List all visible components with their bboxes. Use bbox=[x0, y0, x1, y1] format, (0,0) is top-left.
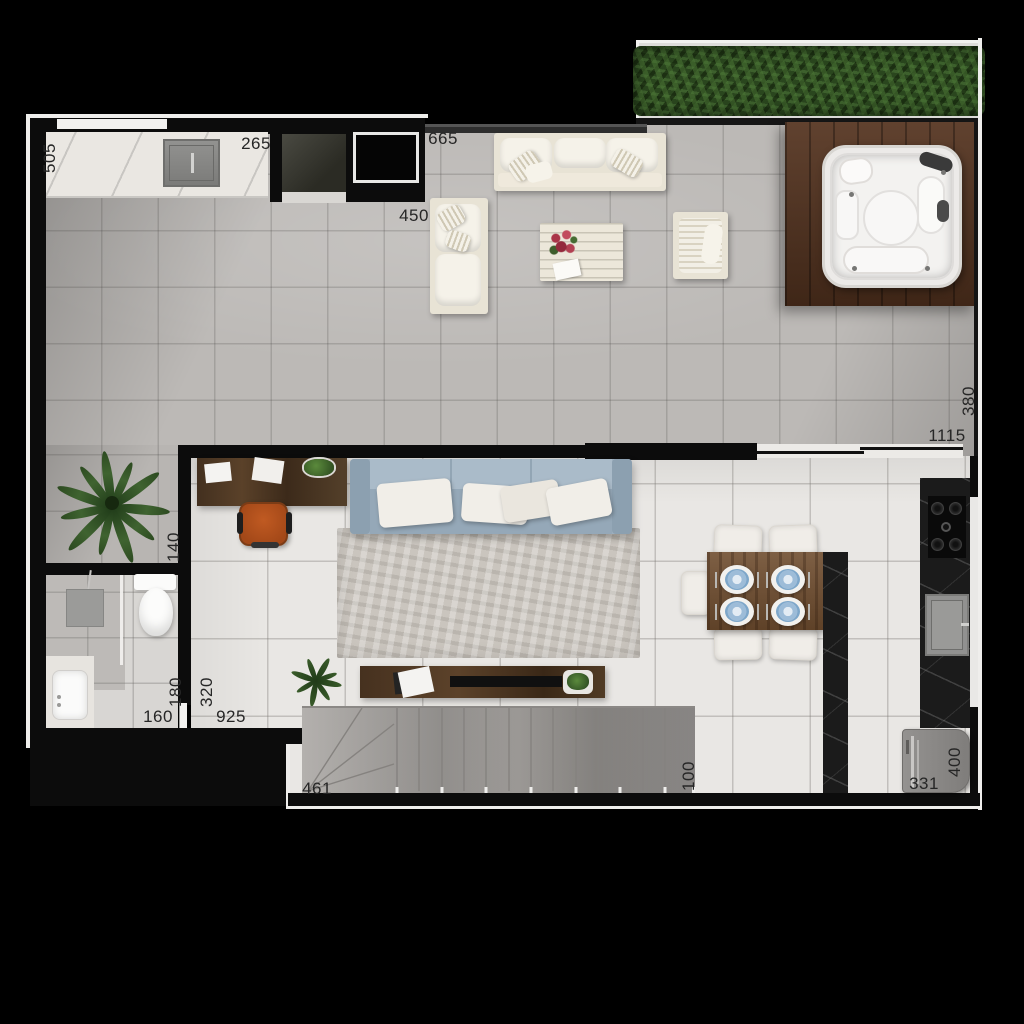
dimension-label: 461 bbox=[302, 779, 332, 799]
knife-icon bbox=[757, 604, 759, 620]
blue-plate bbox=[776, 601, 800, 622]
built-in-appliance bbox=[353, 132, 419, 183]
blue-plate bbox=[725, 601, 749, 622]
palm-plant bbox=[45, 443, 179, 571]
desk-plant bbox=[304, 459, 334, 476]
hot-tub bbox=[822, 145, 962, 288]
place-setting bbox=[766, 596, 810, 628]
glass-door-panel bbox=[860, 447, 963, 450]
wall-left bbox=[30, 118, 46, 742]
hot-tub-jet bbox=[852, 266, 857, 271]
dimension-label: 100 bbox=[679, 761, 699, 791]
outdoor-coffee-table bbox=[540, 223, 623, 281]
paper-sheet bbox=[398, 666, 435, 698]
shower-drain bbox=[66, 589, 104, 627]
fork-icon bbox=[766, 604, 768, 620]
burner-icon bbox=[949, 538, 962, 551]
paper-sheet bbox=[252, 457, 285, 484]
sofa-arm bbox=[612, 459, 632, 534]
wall-window bbox=[57, 119, 167, 129]
stairs bbox=[302, 706, 695, 793]
dimension-label: 331 bbox=[909, 774, 939, 794]
dimension-label: 380 bbox=[959, 386, 979, 416]
counter-front-edge bbox=[282, 192, 346, 203]
sliding-glass-door bbox=[757, 444, 963, 458]
dimension-label: 505 bbox=[40, 143, 60, 173]
terrace-glass-rail bbox=[425, 124, 647, 133]
floor-plant bbox=[288, 652, 344, 708]
dimension-label: 925 bbox=[216, 707, 246, 727]
dimension-label: 180 bbox=[166, 677, 186, 707]
stone-cooktop-slab bbox=[282, 134, 346, 192]
hot-tub-seat bbox=[835, 190, 859, 240]
dimension-label: 450 bbox=[399, 206, 429, 226]
dimension-label: 265 bbox=[241, 134, 271, 154]
living-sofa bbox=[350, 459, 632, 534]
outdoor-loveseat bbox=[430, 198, 488, 314]
shower-glass bbox=[120, 575, 123, 665]
chair-armrest bbox=[237, 512, 243, 534]
outdoor-sofa bbox=[494, 133, 666, 191]
wall-bottom bbox=[288, 793, 980, 806]
dimension-label: 160 bbox=[143, 707, 173, 727]
hot-tub-headrest bbox=[937, 200, 949, 222]
blue-plate bbox=[776, 569, 800, 590]
chair-armrest bbox=[286, 512, 292, 534]
dimension-label: 140 bbox=[164, 532, 184, 562]
hedge-plants bbox=[633, 46, 985, 116]
sink-basin bbox=[931, 600, 963, 650]
divider-wall bbox=[178, 445, 590, 458]
fork-icon bbox=[766, 572, 768, 588]
gas-cooktop bbox=[928, 496, 966, 558]
flower-vase bbox=[545, 228, 581, 262]
floor-plan-canvas: 505 265 665 450 380 1115 140 180 320 160… bbox=[0, 0, 1024, 1024]
book bbox=[553, 258, 582, 280]
vanity-basin bbox=[52, 670, 88, 720]
office-chair bbox=[239, 502, 288, 546]
dimension-label: 665 bbox=[428, 129, 458, 149]
palm-trunk bbox=[105, 496, 119, 510]
tv-console bbox=[360, 666, 605, 698]
appliance-handle bbox=[906, 740, 909, 754]
wall-right bbox=[970, 707, 978, 804]
knife-icon bbox=[808, 604, 810, 620]
dimension-label: 1115 bbox=[928, 426, 965, 446]
knife-icon bbox=[808, 572, 810, 588]
sofa-arm bbox=[350, 459, 370, 534]
faucet-icon bbox=[57, 695, 61, 699]
faucet-icon bbox=[961, 623, 969, 626]
dimension-label: 400 bbox=[945, 747, 965, 777]
area-rug bbox=[337, 528, 640, 658]
burner-icon bbox=[931, 538, 944, 551]
burner-icon bbox=[931, 502, 944, 515]
glass-door-panel bbox=[757, 451, 864, 454]
plant bbox=[567, 673, 589, 690]
chair-base bbox=[251, 542, 279, 548]
kitchen-window bbox=[970, 497, 978, 707]
faucet-icon bbox=[57, 703, 61, 707]
fork-icon bbox=[715, 604, 717, 620]
paper-sheet bbox=[204, 462, 232, 484]
kitchen-sink bbox=[925, 594, 969, 656]
place-setting bbox=[766, 564, 810, 596]
dimension-label: 320 bbox=[197, 677, 217, 707]
place-setting bbox=[715, 564, 759, 596]
pillow bbox=[376, 478, 454, 528]
faucet-icon bbox=[191, 153, 194, 173]
dining-chair bbox=[768, 626, 817, 661]
dining-chair bbox=[714, 627, 763, 661]
burner-icon bbox=[949, 502, 962, 515]
outer-outline bbox=[978, 38, 982, 810]
knife-icon bbox=[757, 572, 759, 588]
hot-tub-jet bbox=[925, 266, 930, 271]
hot-tub-center-well bbox=[863, 190, 919, 246]
hot-tub-jet bbox=[849, 192, 854, 197]
tv-screen bbox=[450, 676, 562, 687]
fork-icon bbox=[715, 572, 717, 588]
cooktop-knob bbox=[941, 522, 951, 532]
loveseat-cushion bbox=[435, 254, 481, 306]
wall-right bbox=[970, 456, 978, 501]
toilet-bowl bbox=[139, 588, 173, 636]
hot-tub-jet bbox=[941, 170, 946, 175]
divider-wall bbox=[585, 443, 757, 460]
place-setting bbox=[715, 596, 759, 628]
wall-step-block bbox=[30, 742, 286, 806]
sofa-cushion bbox=[554, 138, 606, 168]
gourmet-counter-marble bbox=[46, 132, 268, 198]
kitchen-island bbox=[823, 552, 848, 793]
plant-pot bbox=[563, 670, 593, 694]
outdoor-armchair bbox=[673, 212, 728, 279]
gourmet-sink bbox=[163, 139, 220, 187]
blue-plate bbox=[725, 569, 749, 590]
